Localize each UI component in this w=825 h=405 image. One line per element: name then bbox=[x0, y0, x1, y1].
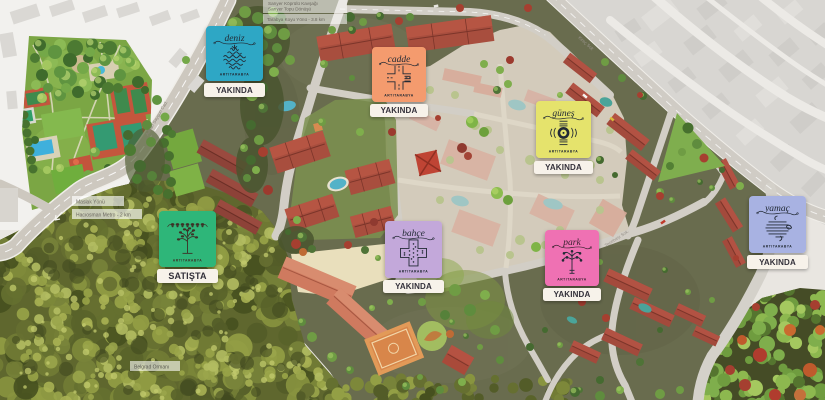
svg-text:ARTITARABYA: ARTITARABYA bbox=[763, 245, 792, 249]
svg-text:park: park bbox=[562, 238, 581, 248]
svg-text:YAKINDA: YAKINDA bbox=[216, 86, 253, 95]
svg-text:YAKINDA: YAKINDA bbox=[545, 163, 582, 172]
svg-text:YAKINDA: YAKINDA bbox=[759, 258, 796, 267]
svg-text:ARTITARABYA: ARTITARABYA bbox=[557, 278, 586, 282]
svg-text:Sarıyer Topu Dönüşü: Sarıyer Topu Dönüşü bbox=[268, 7, 312, 12]
svg-text:SATIŞTA: SATIŞTA bbox=[168, 271, 207, 281]
svg-text:Tarabya Koyu Yönü - 3.8 km: Tarabya Koyu Yönü - 3.8 km bbox=[267, 17, 325, 22]
svg-text:Maslak Yönü: Maslak Yönü bbox=[76, 200, 105, 206]
svg-text:YAKINDA: YAKINDA bbox=[554, 290, 591, 299]
svg-text:Hacıosman Metro - 2 km: Hacıosman Metro - 2 km bbox=[76, 213, 131, 219]
svg-text:ARTITARABYA: ARTITARABYA bbox=[399, 270, 428, 274]
svg-text:güneş: güneş bbox=[552, 109, 574, 119]
svg-text:ARTITARABYA: ARTITARABYA bbox=[549, 150, 578, 154]
svg-text:bahçe: bahçe bbox=[402, 229, 425, 239]
svg-text:YAKINDA: YAKINDA bbox=[395, 282, 432, 291]
svg-text:yamaç: yamaç bbox=[764, 204, 791, 214]
svg-text:ARTITARABYA: ARTITARABYA bbox=[384, 94, 413, 98]
svg-text:ARTITARABYA: ARTITARABYA bbox=[173, 259, 202, 263]
svg-text:Belgrad Ormanı: Belgrad Ormanı bbox=[134, 365, 169, 371]
svg-text:deniz: deniz bbox=[224, 34, 244, 44]
svg-text:Sarıyer Köprülü Kavşağı: Sarıyer Köprülü Kavşağı bbox=[268, 1, 318, 6]
svg-text:cadde: cadde bbox=[388, 55, 411, 65]
svg-text:YAKINDA: YAKINDA bbox=[381, 106, 418, 115]
svg-text:ARTITARABYA: ARTITARABYA bbox=[220, 73, 249, 77]
